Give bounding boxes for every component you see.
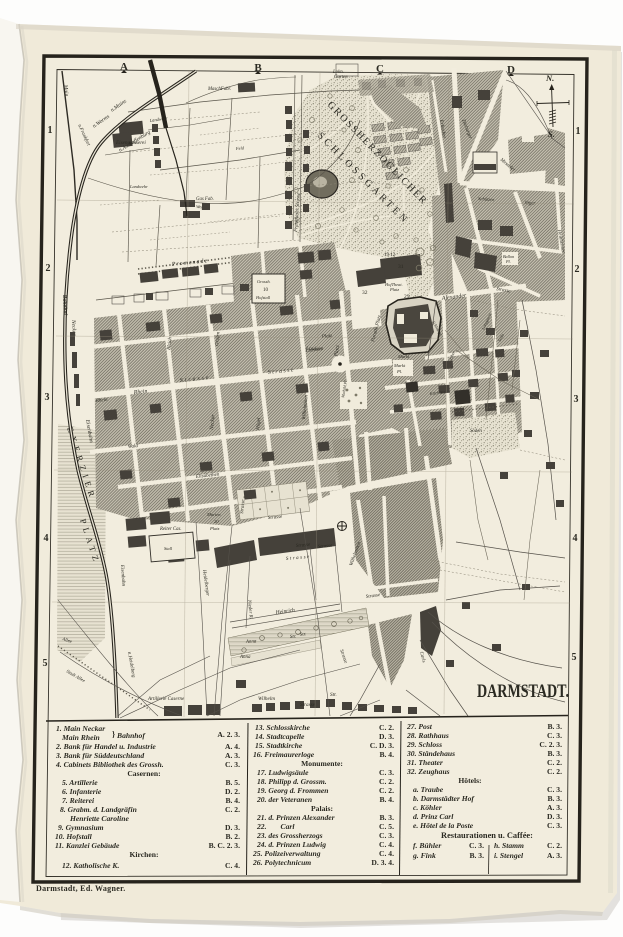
svg-text:10: 10	[263, 288, 269, 293]
svg-text:C. 2.: C. 2.	[547, 767, 562, 776]
svg-text:19. Georg d. Frommen: 19. Georg d. Frommen	[257, 786, 329, 795]
svg-text:1: 1	[576, 126, 581, 137]
svg-text:11. Kanzlei Gebäude: 11. Kanzlei Gebäude	[55, 841, 120, 850]
svg-text:3: 3	[45, 392, 50, 403]
svg-text:B. 3.: B. 3.	[379, 813, 394, 822]
svg-text:7. Reiterei: 7. Reiterei	[62, 796, 95, 805]
svg-text:a. Traube: a. Traube	[413, 785, 444, 794]
svg-text:g. Fink: g. Fink	[412, 851, 436, 860]
svg-text:Str.: Str.	[290, 635, 297, 640]
svg-text:5: 5	[43, 658, 48, 669]
svg-text:29. Schloss: 29. Schloss	[406, 740, 442, 749]
svg-text:Landwehr: Landwehr	[129, 184, 148, 189]
svg-text:1: 1	[48, 125, 53, 136]
svg-text:C. 3.: C. 3.	[379, 768, 394, 777]
svg-text:2. Bank für Handel u. Industri: 2. Bank für Handel u. Industrie	[55, 742, 156, 751]
svg-text:6. Infanterie: 6. Infanterie	[62, 787, 102, 796]
svg-text:4: 4	[44, 533, 49, 544]
svg-text:C. 4.: C. 4.	[379, 849, 394, 858]
svg-text:20. der Veteranen: 20. der Veteranen	[256, 795, 312, 804]
svg-text:C. 3.: C. 3.	[469, 841, 484, 850]
svg-text:Grossh.: Grossh.	[257, 279, 271, 284]
svg-text:C. 2. 3.: C. 2. 3.	[539, 740, 562, 749]
svg-text:Anna: Anna	[245, 639, 257, 645]
svg-text:Artillerie Caserne: Artillerie Caserne	[147, 697, 185, 702]
svg-text:Restaurationen u. Caffée:: Restaurationen u. Caffée:	[441, 831, 533, 840]
svg-text:16. Freimaurerloge: 16. Freimaurerloge	[253, 750, 315, 759]
svg-text:Stall: Stall	[164, 546, 173, 551]
svg-text:C. 4.: C. 4.	[379, 840, 394, 849]
svg-text:3: 3	[574, 394, 579, 405]
svg-text:2: 2	[575, 264, 580, 275]
svg-text:C. 2.: C. 2.	[379, 723, 394, 732]
svg-text:27. Post: 27. Post	[406, 722, 433, 731]
svg-text:Feld: Feld	[235, 145, 245, 151]
svg-text:32. Zeughaus: 32. Zeughaus	[406, 767, 450, 776]
svg-text:Kirchen:: Kirchen:	[130, 850, 159, 859]
svg-text:N.: N.	[545, 73, 554, 83]
svg-text:d. Prinz Carl: d. Prinz Carl	[413, 812, 454, 821]
svg-text:26. Polytechnicum: 26. Polytechnicum	[252, 858, 311, 867]
svg-text:Pl.: Pl.	[396, 369, 402, 374]
svg-text:e. Hôtel de la Poste: e. Hôtel de la Poste	[413, 821, 474, 830]
svg-text:C. 2.: C. 2.	[547, 841, 562, 850]
svg-text:Platz: Platz	[389, 287, 399, 292]
svg-text:C. 3.: C. 3.	[379, 831, 394, 840]
svg-text:D. 2.: D. 2.	[225, 787, 240, 796]
svg-text:C. 5.: C. 5.	[379, 822, 394, 831]
svg-text:Str.: Str.	[330, 692, 337, 698]
svg-text:A. 4.: A. 4.	[225, 742, 240, 751]
svg-text:C. 2.: C. 2.	[379, 786, 394, 795]
svg-text:B. 3.: B. 3.	[547, 794, 562, 803]
svg-text:Pl.: Pl.	[505, 259, 511, 264]
svg-text:A. 3.: A. 3.	[547, 851, 562, 860]
svg-text:19 12: 19 12	[384, 253, 396, 258]
svg-text:10. Hofstall: 10. Hofstall	[55, 832, 93, 841]
svg-text:B. 4.: B. 4.	[225, 796, 240, 805]
svg-text:f. Bühler: f. Bühler	[413, 841, 442, 850]
svg-text:C. 3.: C. 3.	[225, 760, 240, 769]
svg-text:1. Main Neckar: 1. Main Neckar	[56, 724, 106, 733]
svg-text:C. 2.: C. 2.	[225, 805, 240, 814]
svg-text:28. Rathhaus: 28. Rathhaus	[406, 731, 449, 740]
svg-text:i. Stengel: i. Stengel	[494, 851, 524, 860]
svg-text:2: 2	[46, 263, 51, 274]
svg-text:31. Theater: 31. Theater	[406, 758, 444, 767]
svg-text:B. 5.: B. 5.	[225, 778, 240, 787]
svg-text:Darmstadt, Ed. Wagner.: Darmstadt, Ed. Wagner.	[36, 884, 126, 893]
svg-text:A. 3.: A. 3.	[225, 751, 240, 760]
svg-text:b. Darmstädter Hof: b. Darmstädter Hof	[413, 794, 475, 803]
svg-text:D. 3.: D. 3.	[379, 732, 394, 741]
svg-text:13. Schlosskirche: 13. Schlosskirche	[255, 723, 310, 732]
svg-text:C. 3.: C. 3.	[547, 785, 562, 794]
svg-text:Monumente:: Monumente:	[301, 759, 343, 768]
svg-text:B. 3.: B. 3.	[547, 749, 562, 758]
svg-text:9. Gymnasium: 9. Gymnasium	[58, 823, 104, 832]
svg-text:Wilhelm: Wilhelm	[258, 696, 275, 702]
svg-text:}: }	[112, 730, 115, 739]
svg-text:C. 2.: C. 2.	[547, 758, 562, 767]
svg-text:A. 3.: A. 3.	[547, 803, 562, 812]
svg-text:Main Rhein: Main Rhein	[61, 733, 100, 742]
svg-text:5. Artillerie: 5. Artillerie	[62, 778, 98, 787]
svg-text:4: 4	[573, 533, 578, 544]
svg-text:B. 2.: B. 2.	[225, 832, 240, 841]
svg-text:15. Stadtkirche: 15. Stadtkirche	[255, 741, 303, 750]
svg-text:Soden: Soden	[470, 429, 482, 434]
svg-text:4. Cabinets Bibliothek des Gro: 4. Cabinets Bibliothek des Grossh.	[55, 760, 164, 769]
svg-text:Bahnhof: Bahnhof	[61, 295, 68, 316]
svg-text:32: 32	[362, 290, 368, 296]
svg-text:Casernen:: Casernen:	[127, 769, 160, 778]
svg-text:h. Stamm: h. Stamm	[494, 841, 524, 850]
svg-text:Hofstall: Hofstall	[255, 295, 271, 300]
svg-text:25. Polizeiverwaltung: 25. Polizeiverwaltung	[252, 849, 321, 858]
svg-text:8. Grabm. d. Landgräfin: 8. Grabm. d. Landgräfin	[60, 805, 137, 814]
svg-text:Str.: Str.	[300, 632, 307, 638]
svg-text:Hôtels:: Hôtels:	[458, 776, 481, 785]
svg-text:21. d. Prinzen Alexander: 21. d. Prinzen Alexander	[256, 813, 336, 822]
svg-text:18. Philipp d. Grossm.: 18. Philipp d. Grossm.	[257, 777, 327, 786]
svg-text:14. Stadtcapelle: 14. Stadtcapelle	[255, 732, 305, 741]
svg-text:17. Ludwigsäule: 17. Ludwigsäule	[257, 768, 309, 777]
svg-text:C. D. 3.: C. D. 3.	[370, 741, 394, 750]
svg-text:Bahnhof: Bahnhof	[116, 731, 146, 740]
svg-text:D. 3. 4.: D. 3. 4.	[371, 858, 394, 867]
svg-text:Markt: Markt	[397, 354, 410, 359]
svg-text:Henriette Caroline: Henriette Caroline	[69, 814, 129, 823]
svg-text:c. Köhler: c. Köhler	[413, 803, 443, 812]
svg-text:B. 4.: B. 4.	[379, 795, 394, 804]
svg-text:B. 4.: B. 4.	[379, 750, 394, 759]
svg-text:29: 29	[404, 294, 410, 300]
svg-text:C. 2.: C. 2.	[379, 777, 394, 786]
svg-text:Platz: Platz	[209, 526, 220, 531]
svg-text:23. des Grossherzogs: 23. des Grossherzogs	[256, 831, 323, 840]
svg-text:Reiter Cas.: Reiter Cas.	[159, 527, 182, 532]
svg-text:5: 5	[572, 652, 577, 663]
svg-text:12. Katholische K.: 12. Katholische K.	[62, 861, 119, 870]
svg-text:D. 3.: D. 3.	[225, 823, 240, 832]
svg-text:D. 3.: D. 3.	[547, 812, 562, 821]
svg-text:Anna: Anna	[239, 655, 251, 660]
svg-text:A. 2. 3.: A. 2. 3.	[217, 730, 240, 739]
svg-text:C. 4.: C. 4.	[225, 861, 240, 870]
svg-text:Marien: Marien	[206, 512, 221, 517]
svg-text:C. 3.: C. 3.	[547, 821, 562, 830]
svg-text:B. 3.: B. 3.	[547, 722, 562, 731]
svg-text:Palais:: Palais:	[311, 804, 333, 813]
svg-text:C. 3.: C. 3.	[547, 731, 562, 740]
svg-text:31: 31	[398, 264, 404, 270]
svg-text:30. Ständehaus: 30. Ständehaus	[406, 749, 455, 758]
svg-text:20: 20	[214, 519, 219, 524]
svg-text:S.: S.	[548, 129, 555, 139]
svg-text:DARMSTADT.: DARMSTADT.	[477, 681, 569, 702]
svg-text:3. Bank für Süddeutschland: 3. Bank für Süddeutschland	[55, 751, 144, 760]
svg-text:MaschFabr.: MaschFabr.	[207, 87, 231, 92]
svg-text:24. d. Prinzen Ludwig: 24. d. Prinzen Ludwig	[256, 840, 326, 849]
svg-text:Markt: Markt	[393, 363, 406, 368]
svg-text:B. 3.: B. 3.	[469, 851, 484, 860]
svg-text:B. C. 2. 3.: B. C. 2. 3.	[209, 841, 241, 850]
svg-text:Strasse: Strasse	[300, 702, 316, 708]
